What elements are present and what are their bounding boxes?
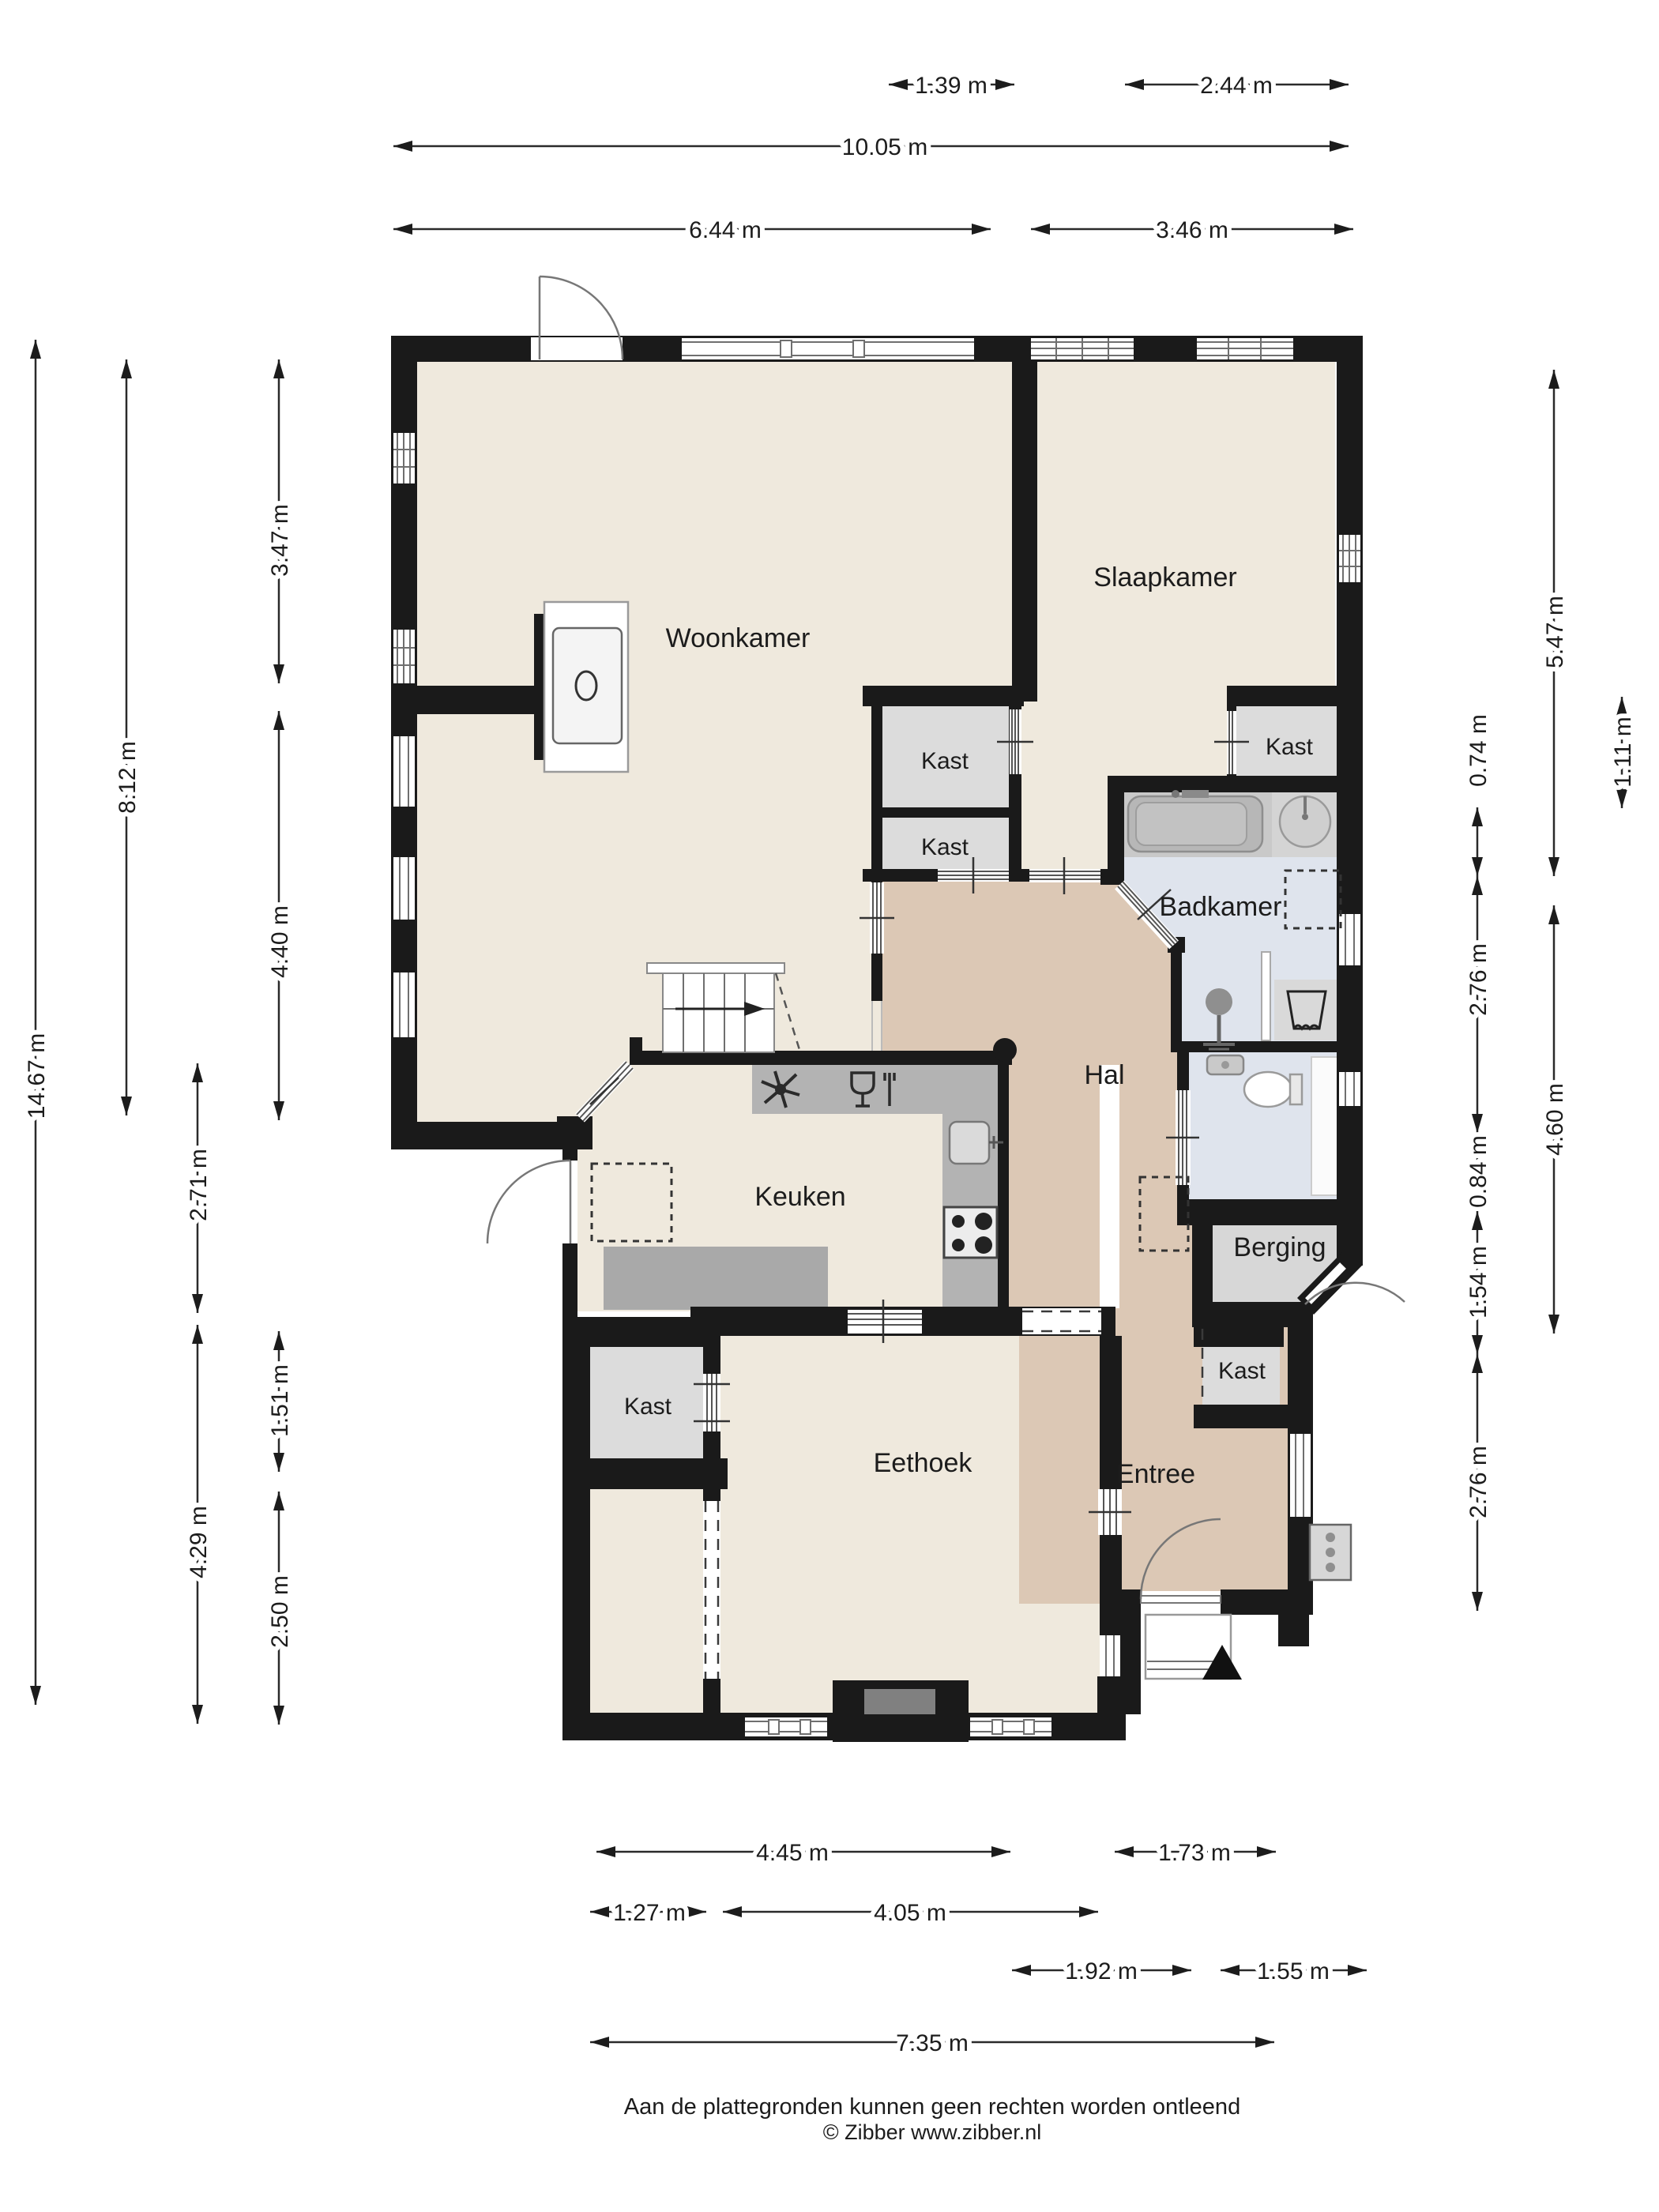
shower-screen [1262, 952, 1270, 1040]
svg-text:1.11 m: 1.11 m [1610, 717, 1636, 788]
window [1339, 914, 1360, 965]
room-label-kast: Kast [1218, 1358, 1266, 1384]
svg-text:1.51 m: 1.51 m [267, 1364, 293, 1437]
footer-disclaimer: Aan de plattegronden kunnen geen rechten… [624, 2094, 1240, 2120]
room-label-berging: Berging [1233, 1232, 1326, 1262]
dimension: 2.50 m [267, 1492, 293, 1725]
window [682, 338, 974, 359]
svg-text:4.45 m: 4.45 m [756, 1840, 829, 1866]
dimension: 14.67 m [24, 340, 50, 1705]
dimension: 5.47 m [1542, 370, 1568, 876]
stove-icon [944, 1207, 997, 1258]
dimension: 3.46 m [1031, 217, 1353, 243]
svg-text:8.12 m: 8.12 m [115, 741, 141, 814]
room-label-entree: Entree [1116, 1459, 1195, 1489]
column [993, 1038, 1017, 1062]
dimension: 2.44 m [1125, 73, 1349, 99]
dimension: 7.35 m [590, 2030, 1274, 2056]
svg-text:2.76 m: 2.76 m [1465, 943, 1492, 1016]
window [393, 630, 415, 683]
svg-text:4.40 m: 4.40 m [267, 905, 293, 978]
washbasin-icon [1280, 796, 1330, 847]
slaapkamer-floor [1037, 362, 1335, 702]
toilet-icon [1244, 1072, 1302, 1107]
door-arc [487, 1161, 570, 1243]
svg-text:1.73 m: 1.73 m [1158, 1840, 1231, 1866]
dimension: 1.51 m [267, 1331, 293, 1472]
svg-text:1.39 m: 1.39 m [915, 73, 987, 99]
svg-text:2.44 m: 2.44 m [1200, 73, 1273, 99]
dimension: 1.39 m [889, 73, 1014, 99]
utility-fixture [1310, 1525, 1351, 1580]
kitchen-side-door [487, 1161, 577, 1243]
dimension: 0.74 m [1465, 714, 1492, 876]
dimension: 6.44 m [393, 217, 991, 243]
dashed-opening [703, 1501, 720, 1679]
floorplan-drawing: Woonkamer Slaapkamer Badkamer Hal Keuken… [0, 0, 1659, 2212]
window [393, 433, 415, 483]
dimension: 2.76 m [1465, 876, 1492, 1133]
dimension: 2.71 m [186, 1063, 212, 1313]
svg-text:3.47 m: 3.47 m [267, 504, 293, 577]
svg-text:6.44 m: 6.44 m [689, 217, 762, 243]
room-label-kast: Kast [921, 748, 969, 774]
front-top-door [531, 276, 623, 360]
svg-text:4.60 m: 4.60 m [1542, 1083, 1568, 1156]
window [1339, 535, 1360, 582]
svg-text:1.92 m: 1.92 m [1065, 1958, 1138, 1984]
dimension: 4.45 m [596, 1840, 1010, 1866]
kitchen-counter [752, 1060, 998, 1114]
dimension: 0.84 m [1465, 1133, 1492, 1211]
window [393, 736, 415, 807]
room-label-kast: Kast [921, 834, 969, 860]
door-mat [864, 1689, 935, 1714]
dimension: 1.92 m [1012, 1958, 1191, 1984]
room-label-hal: Hal [1084, 1060, 1124, 1090]
dimension: 4.29 m [186, 1325, 212, 1724]
dimension: 1.11 m [1610, 697, 1636, 808]
dimension: 2.76 m [1465, 1354, 1492, 1611]
svg-text:3.46 m: 3.46 m [1156, 217, 1228, 243]
svg-text:4.05 m: 4.05 m [874, 1900, 946, 1926]
window [745, 1717, 827, 1736]
room-label-eethoek: Eethoek [874, 1448, 973, 1478]
footer-copyright: © Zibber www.zibber.nl [823, 2120, 1042, 2144]
dimension: 4.40 m [267, 711, 293, 1120]
svg-text:2.50 m: 2.50 m [267, 1575, 293, 1648]
room-label-badkamer: Badkamer [1160, 892, 1282, 922]
dimension: 1.73 m [1115, 1840, 1276, 1866]
dimension: 1.54 m [1465, 1211, 1492, 1354]
dimension: 1.27 m [590, 1900, 706, 1926]
floorplan-page: Woonkamer Slaapkamer Badkamer Hal Keuken… [0, 0, 1659, 2212]
svg-text:7.35 m: 7.35 m [896, 2030, 969, 2056]
room-label-woonkamer: Woonkamer [666, 623, 811, 653]
window [1031, 338, 1134, 359]
svg-text:0.74 m: 0.74 m [1465, 714, 1492, 787]
window [970, 1717, 1051, 1736]
window [1101, 1635, 1120, 1676]
fireplace-icon [544, 602, 628, 772]
svg-text:1.54 m: 1.54 m [1465, 1246, 1492, 1319]
wc-sink-icon [1207, 1055, 1243, 1074]
window [1197, 338, 1293, 359]
dashed-opening [1022, 1308, 1101, 1334]
svg-text:1.55 m: 1.55 m [1257, 1958, 1330, 1984]
window [393, 972, 415, 1037]
bathtub-icon [1128, 790, 1262, 852]
svg-text:5.47 m: 5.47 m [1542, 596, 1568, 668]
svg-text:14.67 m: 14.67 m [24, 1033, 50, 1119]
svg-text:0.84 m: 0.84 m [1465, 1135, 1492, 1208]
room-label-kast: Kast [624, 1394, 672, 1420]
dimension: 8.12 m [115, 359, 141, 1115]
dimension: 4.05 m [723, 1900, 1098, 1926]
room-label-keuken: Keuken [754, 1182, 845, 1212]
svg-text:1.27 m: 1.27 m [613, 1900, 686, 1926]
dimension: 1.55 m [1221, 1958, 1367, 1984]
dimension: 4.60 m [1542, 905, 1568, 1334]
svg-text:2.76 m: 2.76 m [1465, 1446, 1492, 1518]
window [1290, 1434, 1311, 1517]
window [1339, 1072, 1360, 1106]
dimension: 3.47 m [267, 359, 293, 683]
svg-text:10.05 m: 10.05 m [842, 134, 927, 160]
svg-text:4.29 m: 4.29 m [186, 1506, 212, 1578]
room-label-kast: Kast [1266, 734, 1314, 760]
svg-text:2.71 m: 2.71 m [186, 1149, 212, 1221]
dimension: 10.05 m [393, 134, 1349, 160]
room-label-slaapkamer: Slaapkamer [1093, 562, 1236, 592]
window [393, 857, 415, 920]
